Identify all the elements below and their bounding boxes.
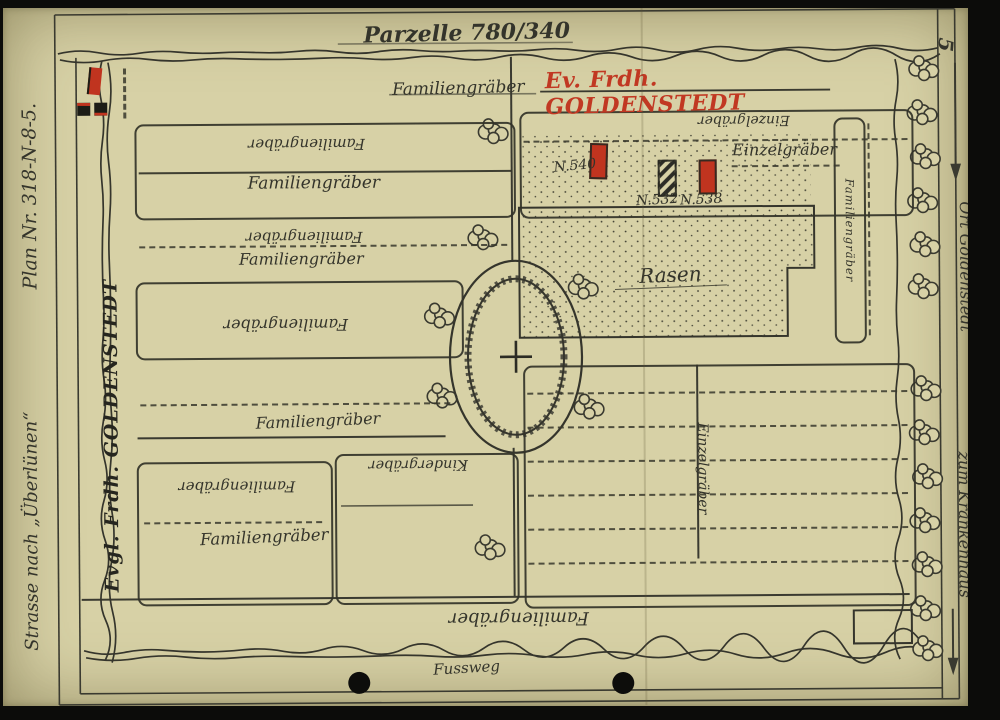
punch-hole [348,672,370,694]
field-kindergraeber [335,453,520,605]
field-einzelgraeber-se [523,363,917,609]
label-familiengraeber-flipped: Familiengräber [431,607,607,629]
header-familiengraeber: Familiengräber [392,76,552,100]
arrow-to-town-icon [955,63,956,173]
scanned-cemetery-plan: Familiengräber Parzelle 780/340 5 Famili… [0,0,1000,720]
legend-black-mark [77,103,90,116]
label-einzelgraeber-flipped: Einzelgräber [681,112,806,129]
paper-sheet: Familiengräber Parzelle 780/340 5 Famili… [3,8,968,706]
label-einzelgraeber-vertical-wrap: Einzelgräber [687,403,718,533]
label-familiengraeber-flipped: Familiengräber [221,315,351,335]
label-familiengraeber-flipped: Familiengräber [241,135,371,154]
label-familiengraeber-flipped: Familiengräber [240,228,368,247]
punch-hole [612,672,634,694]
building-outline [854,610,912,643]
grave-marker-538 [699,159,717,194]
legend-red-mark [87,67,103,95]
margin-cemetery-edge-label: Evgl. Frdh. GOLDENSTEDT [99,265,131,605]
margin-plan-number: Plan Nr. 318-N-8-5. [18,46,50,346]
margin-to-town: Ort Goldenstedt [945,192,968,342]
grave-label-538: N.538 [680,190,733,208]
label-einzelgraeber: Einzelgräber [723,139,845,159]
strip-label: Familiengräber [843,179,858,283]
label-familiengraeber: Familiengräber [237,249,365,269]
margin-street-name: Strasse nach „Überlünen“ [20,351,53,706]
label-kindergraeber-flipped: Kindergräber [356,456,481,473]
label-familiengraeber-flipped: Familiengräber [172,477,302,496]
label-einzelgraeber-vertical: Einzelgräber [694,423,711,515]
legend-dashes [123,69,126,119]
label-rasen: Rasen [614,260,727,290]
page-number: 5 [933,37,958,53]
margin-to-hospital: zum Krankenhaus [944,435,968,615]
plan-title: Parzelle 780/340 [356,17,577,48]
legend-black-mark [94,103,107,116]
label-familiengraeber: Familiengräber [239,173,389,194]
